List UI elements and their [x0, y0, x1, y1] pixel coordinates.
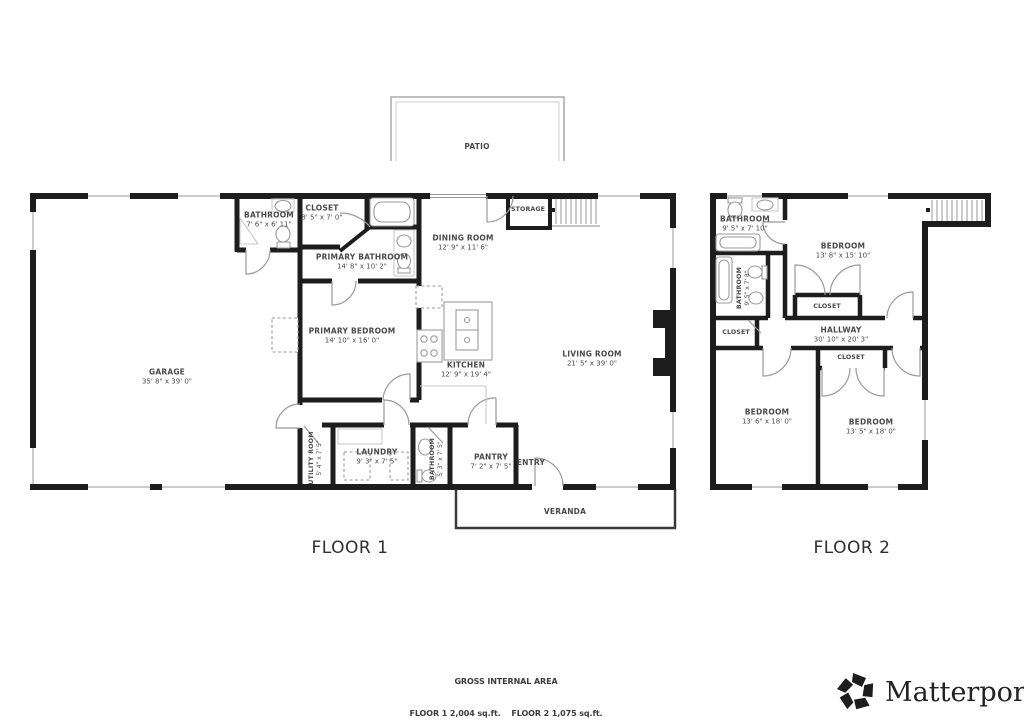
room-label-f2-hallway: HALLWAY 30' 10" x 20' 3"	[814, 326, 869, 345]
room-label-f2-closet-mid: CLOSET	[837, 354, 865, 362]
room-label-storage: STORAGE	[511, 206, 545, 214]
matterport-logo: Matterport ®	[836, 671, 1024, 713]
appliance-icon	[272, 318, 298, 352]
room-label-primary-bedroom: PRIMARY BEDROOM 14' 10" x 16' 0"	[309, 327, 396, 346]
floor2-stairs-icon	[926, 200, 982, 221]
floor1-stairs-icon	[551, 199, 600, 226]
room-label-patio: PATIO	[464, 142, 489, 152]
room-label-bathroom-bottom: BATHROOM 5' 3" x 7' 5"	[429, 438, 445, 480]
fireplace-icon	[653, 310, 673, 376]
area-summary: GROSS INTERNAL AREA FLOOR 1 2,004 sq.ft.…	[326, 656, 685, 723]
fridge-icon	[416, 286, 442, 308]
room-label-dining-room: DINING ROOM 12' 9" x 11' 6"	[432, 234, 493, 253]
kitchen-island-icon	[444, 302, 492, 360]
floorplan-drawing	[0, 0, 1024, 723]
room-label-closet: CLOSET 8' 5" x 7' 0"	[301, 204, 342, 223]
room-label-entry: ENTRY	[517, 458, 545, 468]
floor1-title: FLOOR 1	[312, 538, 389, 558]
matterport-pinwheel-icon	[836, 671, 876, 713]
matterport-wordmark: Matterport	[885, 679, 1024, 706]
room-label-kitchen: KITCHEN 12' 9" x 19' 4"	[441, 361, 491, 380]
room-label-bathroom-top: BATHROOM 7' 6" x 6' 11"	[244, 211, 294, 230]
room-label-veranda: VERANDA	[544, 507, 586, 517]
room-label-f2-closet-bedroom: CLOSET	[813, 303, 841, 311]
room-label-pantry: PANTRY 7' 2" x 7' 5"	[470, 453, 511, 472]
room-label-living-room: LIVING ROOM 21' 5" x 39' 0"	[562, 350, 621, 369]
stove-icon	[417, 330, 442, 362]
room-label-f2-bathroom-top: BATHROOM 9' 5" x 7' 10"	[720, 215, 770, 234]
floorplan-page: PATIO BATHROOM 7' 6" x 6' 11" CLOSET 8' …	[0, 0, 1024, 723]
room-label-laundry: LAUNDRY 9' 3" x 7' 5"	[356, 448, 397, 467]
room-label-f2-closet-hall: CLOSET	[722, 329, 750, 337]
room-label-garage: GARAGE 35' 8" x 39' 0"	[142, 368, 192, 387]
room-label-utility-room: UTILITY ROOM 5' 4" x 7' 5"	[308, 431, 324, 484]
summary-title: GROSS INTERNAL AREA	[326, 677, 685, 688]
room-label-f2-bathroom-mid: BATHROOM 9' 5" x 7' 8"	[736, 267, 752, 309]
room-label-f2-bedroom-right: BEDROOM 13' 5" x 18' 0"	[846, 418, 896, 437]
room-label-f2-bedroom-left: BEDROOM 13' 6" x 18' 0"	[742, 408, 792, 427]
summary-floors: FLOOR 1 2,004 sq.ft. FLOOR 2 1,075 sq.ft…	[326, 709, 685, 720]
room-label-f2-bedroom-top: BEDROOM 13' 8" x 15' 10"	[816, 242, 871, 261]
room-label-primary-bathroom: PRIMARY BATHROOM 14' 8" x 10' 2"	[316, 253, 408, 272]
floor2-title: FLOOR 2	[814, 538, 891, 558]
